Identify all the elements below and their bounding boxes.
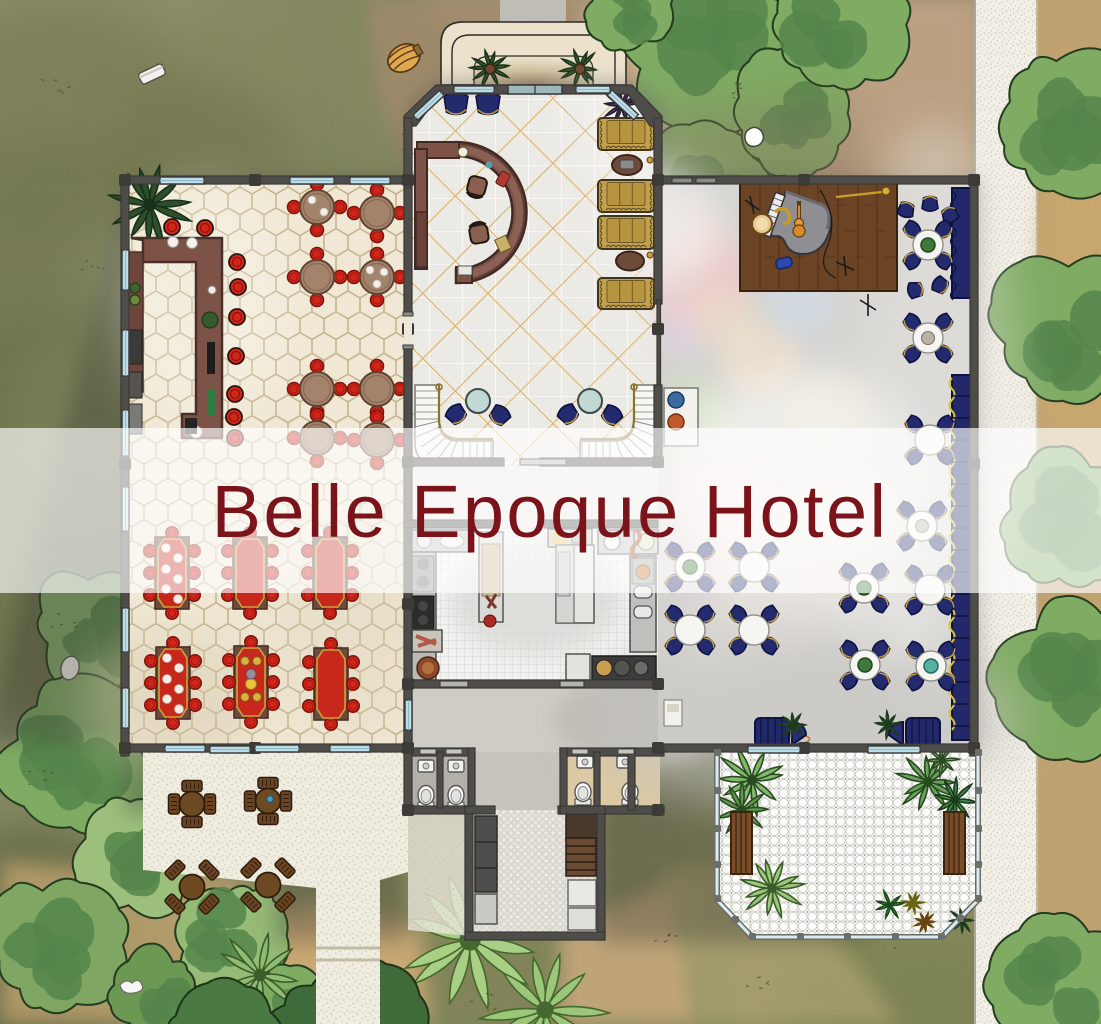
svg-text:Belle Epoque Hotel: Belle Epoque Hotel [212, 470, 889, 553]
